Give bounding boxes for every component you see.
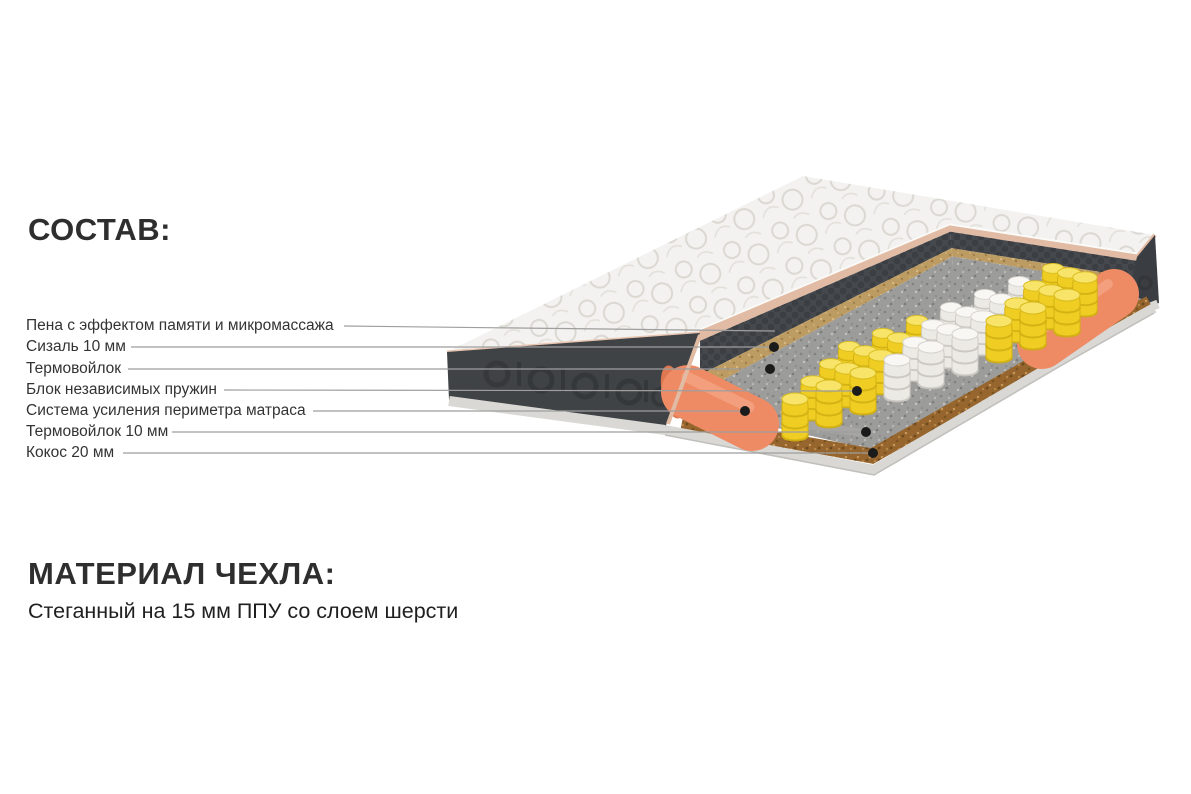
layer-label-felt-bottom: Термовойлок 10 мм (26, 422, 168, 442)
cover-material-heading: МАТЕРИАЛ ЧЕХЛА: (28, 556, 335, 592)
cover-material-description: Стеганный на 15 мм ППУ со слоем шерсти (28, 599, 458, 624)
layer-label-coconut: Кокос 20 мм (26, 443, 114, 463)
marker-dot-felt-top (765, 364, 775, 374)
layer-label-sisal: Сизаль 10 мм (26, 337, 126, 357)
layer-label-memory-foam: Пена с эффектом памяти и микромассажа (26, 316, 334, 336)
composition-heading: СОСТАВ: (28, 212, 171, 248)
layer-label-perimeter: Система усиления периметра матраса (26, 401, 306, 421)
marker-dot-perimeter (740, 406, 750, 416)
product-diagram-mattress: СОСТАВ: Пена с эффектом памяти и микрома… (0, 0, 1191, 794)
layer-label-felt-top: Термовойлок (26, 359, 121, 379)
marker-dot-sisal (769, 342, 779, 352)
marker-dot-coconut (868, 448, 878, 458)
layer-label-springs: Блок независимых пружин (26, 380, 217, 400)
marker-dot-springs (852, 386, 862, 396)
marker-dot-felt-bottom (861, 427, 871, 437)
